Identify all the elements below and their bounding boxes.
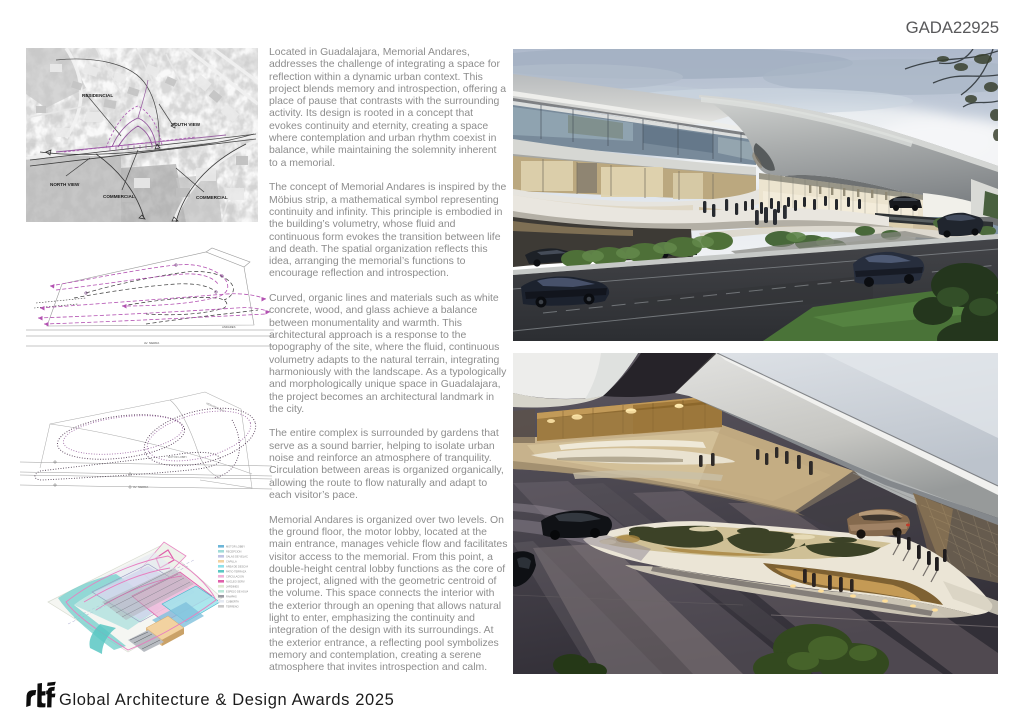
- svg-text:SOUTH VIEW: SOUTH VIEW: [171, 122, 201, 127]
- svg-text:MOTOR LOBBY: MOTOR LOBBY: [168, 455, 187, 459]
- svg-text:CUBIERTA: CUBIERTA: [226, 600, 239, 604]
- svg-text:ESPEJO DE AGUA: ESPEJO DE AGUA: [226, 590, 248, 594]
- svg-text:AV. SIERRA: AV. SIERRA: [144, 341, 159, 345]
- svg-text:CAPILLA: CAPILLA: [226, 560, 237, 564]
- svg-text:TERRENO: TERRENO: [226, 605, 239, 609]
- svg-text:PATIO TERRAZA: PATIO TERRAZA: [226, 570, 246, 574]
- svg-text:RESIDENCIAL: RESIDENCIAL: [82, 93, 113, 98]
- svg-text:MOTOR LOBBY: MOTOR LOBBY: [226, 545, 245, 549]
- svg-text:ANDARES: ANDARES: [222, 325, 236, 329]
- svg-text:AREA DE DESCANSO: AREA DE DESCANSO: [226, 565, 248, 569]
- svg-text:SALAS DE VELACION: SALAS DE VELACION: [226, 555, 248, 559]
- svg-text:COMMERCIAL: COMMERCIAL: [103, 194, 135, 199]
- svg-text:RAMPAS: RAMPAS: [226, 595, 237, 599]
- svg-text:COMMERCIAL: COMMERCIAL: [196, 195, 228, 200]
- svg-text:NUCLEO SERV.: NUCLEO SERV.: [226, 580, 245, 584]
- svg-text:RECEPCION: RECEPCION: [226, 550, 242, 554]
- svg-text:JARDINES: JARDINES: [226, 585, 239, 589]
- svg-text:AV. SIERRA: AV. SIERRA: [133, 485, 148, 489]
- svg-text:NORTH VIEW: NORTH VIEW: [50, 182, 80, 187]
- svg-text:CIRCULACION: CIRCULACION: [226, 575, 244, 579]
